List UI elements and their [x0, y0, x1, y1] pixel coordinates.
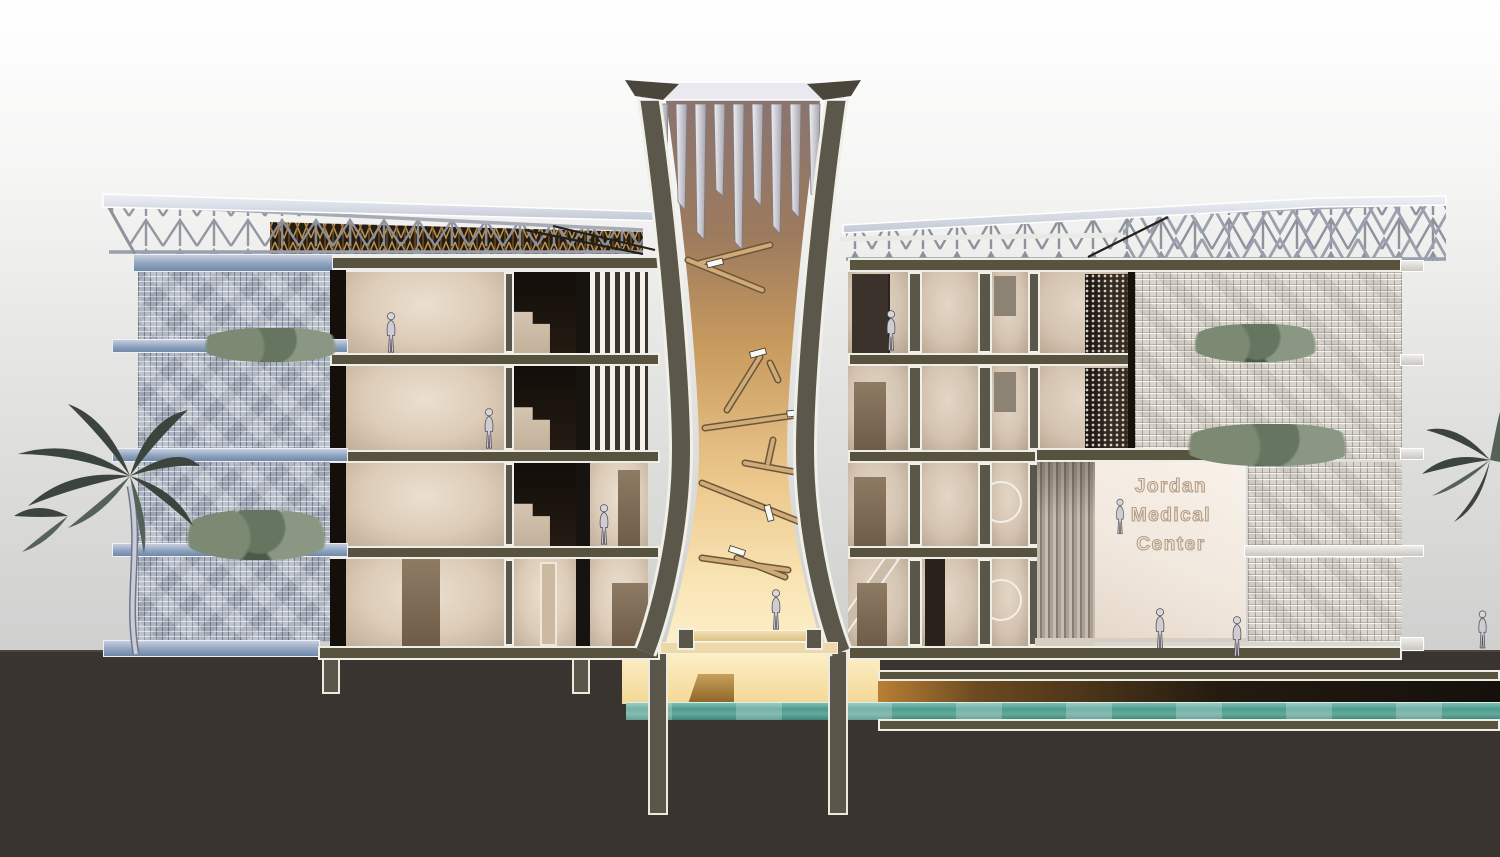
person-figure [1475, 610, 1490, 650]
facade-planting [1182, 424, 1352, 466]
interior-wall [978, 272, 992, 353]
slab-stub [1400, 637, 1424, 651]
interior-wall [1028, 366, 1040, 450]
interior-wall [908, 272, 922, 353]
cabinet-panel [994, 276, 1016, 316]
palm-fronds [14, 404, 200, 554]
room-f4-b [922, 272, 978, 353]
atrium-top-rim [625, 80, 861, 100]
person-figure-lobby [1152, 608, 1168, 650]
tunnel-top-slab [878, 670, 1500, 681]
shaft-step [514, 495, 550, 546]
dark-wall [576, 272, 590, 353]
atrium-light-chimney [595, 78, 905, 668]
person-figure [883, 310, 899, 352]
facade-planting [1190, 324, 1320, 362]
interior-wall [908, 366, 922, 450]
atrium-bench [693, 630, 807, 642]
service-shaft-f3 [514, 366, 576, 450]
dark-panel [925, 559, 945, 646]
dark-wall [576, 366, 590, 450]
service-shaft-f2 [514, 463, 576, 546]
palm-tree [1418, 402, 1500, 552]
interior-wall [978, 366, 992, 450]
foundation-pile [828, 650, 848, 815]
right-ceiling-slab [848, 258, 1402, 272]
room-f4-left [346, 272, 504, 353]
left-facade-top-beam [133, 254, 333, 272]
perforated-screen-f4 [1085, 274, 1130, 353]
room-f2-b [922, 463, 978, 546]
person-figure [481, 408, 497, 450]
pool-water [626, 702, 1500, 720]
facade-planting [200, 328, 340, 362]
wall-panel [402, 559, 440, 646]
slab-stub [1400, 354, 1424, 366]
interior-wall [504, 366, 514, 450]
round-fixture [992, 481, 1022, 523]
dark-wall [576, 559, 590, 646]
interior-wall [504, 559, 514, 646]
service-shaft-f4 [514, 272, 576, 353]
room-f2-left [346, 463, 504, 546]
palm-fronds [1422, 412, 1500, 522]
room-f3-b [922, 366, 978, 450]
right-ground-slab [848, 646, 1402, 660]
shaft-step [514, 303, 550, 353]
perforated-screen-f3 [1085, 368, 1130, 450]
interior-wall [1028, 272, 1040, 353]
interior-wall [978, 463, 992, 546]
foundation-pile [648, 650, 668, 815]
tunnel-bottom-slab [878, 719, 1500, 731]
person-figure [1113, 498, 1127, 536]
facade-planting [182, 510, 330, 560]
sign-line-1: Jordan [1096, 472, 1246, 501]
interior-wall [504, 272, 514, 353]
room-f1-c [992, 559, 1028, 646]
architectural-section-scene: Jordan Medical Center [0, 0, 1500, 857]
person-figure [383, 312, 399, 354]
dark-wall [576, 463, 590, 546]
platform-bracket [805, 628, 823, 650]
shaft-step [514, 398, 550, 450]
door-frame [540, 562, 557, 646]
person-figure [596, 504, 612, 546]
palm-tree [8, 388, 203, 660]
interior-wall [908, 463, 922, 546]
room-f2-c [992, 463, 1028, 546]
interior-wall [978, 559, 992, 646]
interior-wall [504, 463, 514, 546]
person-figure-lobby [1229, 616, 1245, 658]
slab-stub [1400, 260, 1424, 272]
round-fixture [992, 579, 1022, 621]
interior-wall [908, 559, 922, 646]
lobby-louver-wall [1037, 462, 1095, 642]
cabinet-panel [994, 372, 1016, 412]
person-figure-atrium [768, 589, 784, 631]
pier-slab [1244, 545, 1424, 557]
